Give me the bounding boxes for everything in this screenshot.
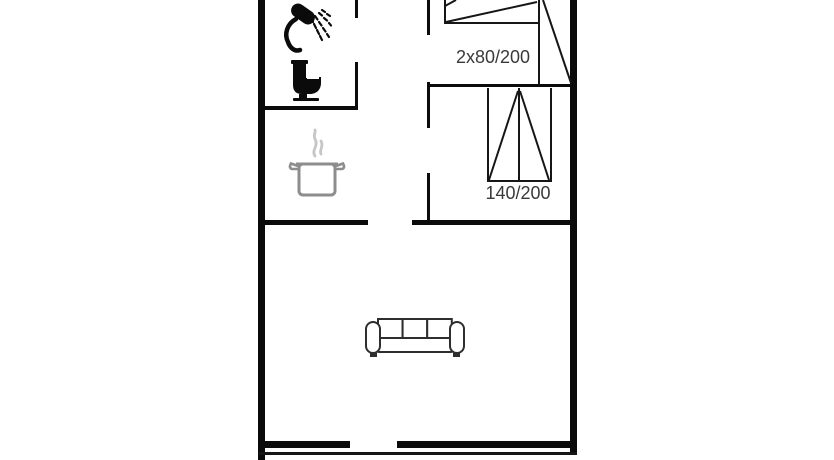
single-bed-diagonal-left xyxy=(489,91,518,180)
bathroom-right-wall-lower xyxy=(355,62,358,110)
single-bed-center-line xyxy=(518,88,520,182)
sofa-cushion-middle xyxy=(403,319,428,340)
bathroom-bottom-wall xyxy=(260,106,358,110)
sofa-base xyxy=(377,338,453,352)
sofa-arm-left xyxy=(366,322,380,353)
bed-size-label-bedroom2: 140/200 xyxy=(468,182,568,204)
hallway-right-wall-lower xyxy=(427,173,430,223)
diagonal-lines xyxy=(0,0,834,460)
bed-size-label-bedroom1: 2x80/200 xyxy=(443,46,543,68)
hallway-right-wall-upper xyxy=(427,0,430,35)
left-exterior-wall xyxy=(258,0,265,460)
single-bed-right-edge xyxy=(550,88,552,182)
living-room-top-wall-right xyxy=(412,220,577,225)
double-bed-left-edge xyxy=(444,0,446,24)
single-bed-left-edge xyxy=(487,88,489,182)
bottom-wall-right xyxy=(397,441,577,448)
toilet-icon xyxy=(286,57,328,102)
double-bed-right-edge xyxy=(538,0,540,85)
single-bed-diagonal-right xyxy=(520,91,549,180)
sofa-cushion-right xyxy=(427,319,452,340)
sofa-cushion-left xyxy=(378,319,403,340)
entry-door-leaf xyxy=(543,0,571,83)
bathroom-right-wall-upper xyxy=(355,0,358,18)
right-exterior-wall xyxy=(570,0,577,455)
sofa-arm-right xyxy=(450,322,464,353)
double-bed-diagonal-fragment xyxy=(445,0,456,6)
shower-icon xyxy=(281,3,333,55)
steam xyxy=(314,130,322,156)
cooking-pot-icon xyxy=(283,128,351,200)
shower-hose xyxy=(286,19,300,51)
living-room-top-wall-left xyxy=(258,220,368,225)
terrace-edge-line xyxy=(259,452,577,455)
bedroom-divider-wall xyxy=(427,84,577,87)
hallway-right-wall-middle xyxy=(427,82,430,128)
sofa-icon xyxy=(363,314,467,360)
bottom-wall-left xyxy=(258,441,350,448)
floorplan: 2x80/200 140/200 xyxy=(0,0,834,460)
double-bed-diagonal xyxy=(446,2,537,22)
sofa-foot-left xyxy=(370,353,377,357)
double-bed-foot-edge xyxy=(444,22,540,24)
sofa-foot-right xyxy=(453,353,460,357)
